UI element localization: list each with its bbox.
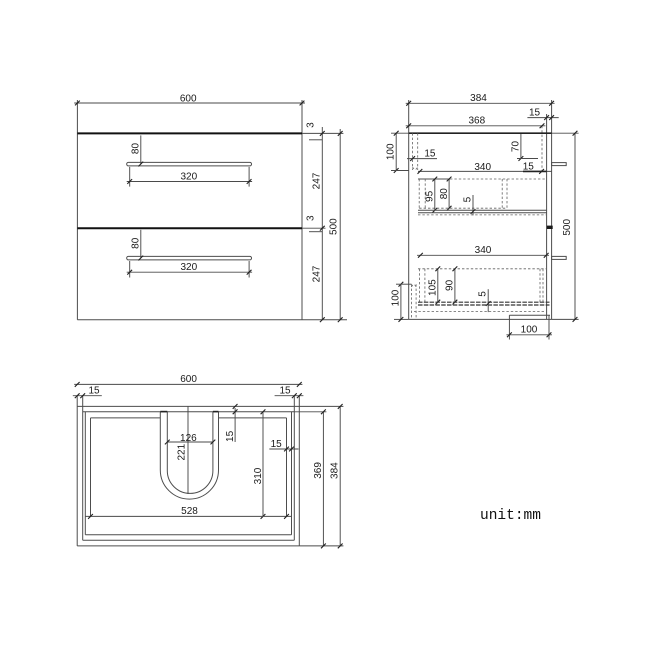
svg-text:15: 15 bbox=[279, 386, 291, 397]
svg-text:600: 600 bbox=[180, 93, 197, 104]
svg-text:95: 95 bbox=[424, 190, 435, 202]
svg-text:528: 528 bbox=[181, 506, 198, 517]
svg-text:15: 15 bbox=[529, 107, 541, 118]
svg-text:5: 5 bbox=[478, 291, 489, 297]
svg-text:80: 80 bbox=[439, 188, 450, 200]
svg-text:unit:mm: unit:mm bbox=[480, 508, 541, 524]
svg-text:126: 126 bbox=[180, 433, 197, 444]
svg-text:15: 15 bbox=[271, 439, 283, 450]
svg-text:384: 384 bbox=[330, 462, 341, 479]
svg-text:100: 100 bbox=[386, 143, 397, 160]
svg-text:340: 340 bbox=[474, 162, 491, 173]
svg-text:310: 310 bbox=[253, 467, 264, 484]
svg-text:80: 80 bbox=[131, 143, 142, 155]
svg-text:15: 15 bbox=[225, 430, 236, 442]
svg-text:320: 320 bbox=[180, 262, 197, 273]
svg-text:369: 369 bbox=[313, 462, 324, 479]
svg-text:105: 105 bbox=[427, 279, 438, 296]
svg-text:500: 500 bbox=[328, 218, 339, 235]
svg-text:15: 15 bbox=[88, 386, 100, 397]
svg-text:384: 384 bbox=[470, 93, 487, 104]
svg-text:600: 600 bbox=[180, 374, 197, 385]
svg-text:368: 368 bbox=[468, 116, 485, 127]
svg-text:100: 100 bbox=[391, 289, 402, 306]
svg-text:5: 5 bbox=[463, 196, 474, 202]
svg-text:221: 221 bbox=[177, 443, 188, 460]
svg-text:247: 247 bbox=[311, 172, 322, 189]
svg-text:500: 500 bbox=[562, 219, 573, 236]
svg-text:340: 340 bbox=[475, 245, 492, 256]
svg-text:90: 90 bbox=[445, 279, 456, 291]
svg-text:3: 3 bbox=[306, 215, 317, 221]
svg-text:70: 70 bbox=[511, 141, 522, 153]
svg-text:15: 15 bbox=[523, 161, 535, 172]
svg-text:320: 320 bbox=[180, 171, 197, 182]
svg-text:247: 247 bbox=[311, 265, 322, 282]
svg-text:15: 15 bbox=[424, 148, 436, 159]
svg-text:3: 3 bbox=[306, 122, 317, 128]
svg-text:100: 100 bbox=[521, 325, 538, 336]
svg-text:80: 80 bbox=[131, 237, 142, 249]
